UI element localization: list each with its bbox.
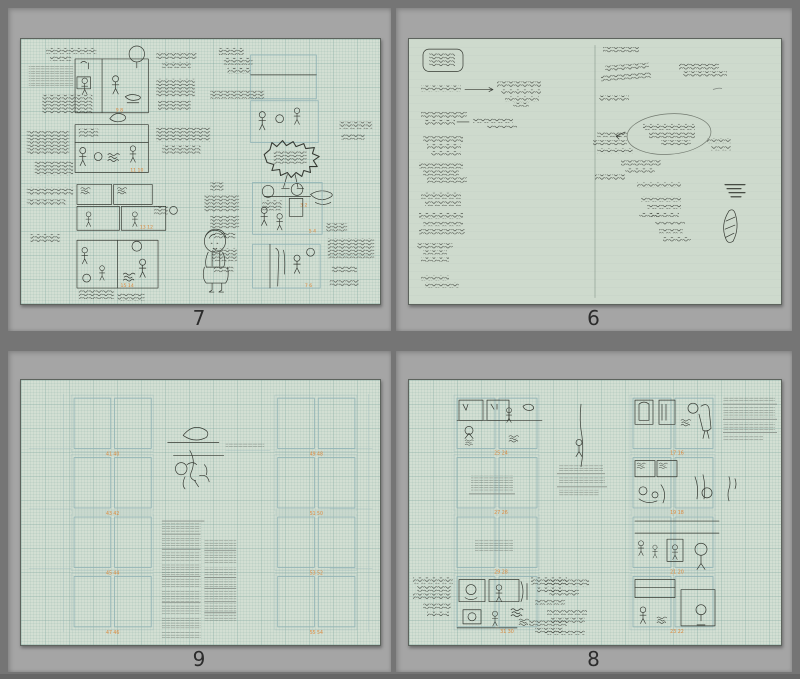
svg-text:9 8: 9 8 xyxy=(116,108,123,114)
page-number-label-6: 6 xyxy=(396,307,792,331)
svg-text:3 2: 3 2 xyxy=(300,202,307,208)
svg-text:45 44: 45 44 xyxy=(106,570,119,576)
svg-text:55 54: 55 54 xyxy=(310,630,323,636)
page-cell-8: 25 24 27 26 29 28 xyxy=(396,351,792,672)
page-number-label-7: 7 xyxy=(8,307,391,331)
page-thumbnail-9[interactable]: 41 40 43 42 45 44 47 46 49 48 51 50 53 5… xyxy=(20,379,381,646)
page-9-paper: 41 40 43 42 45 44 47 46 49 48 51 50 53 5… xyxy=(20,379,381,646)
svg-text:19 18: 19 18 xyxy=(670,510,684,516)
svg-text:41 40: 41 40 xyxy=(106,451,119,457)
page-6-notes-art xyxy=(409,39,781,304)
page-7-paper: 9 8 11 10 xyxy=(20,38,381,305)
page-8-sketch-art: 25 24 27 26 29 28 xyxy=(409,380,781,645)
page-thumbnail-7[interactable]: 9 8 11 10 xyxy=(20,38,381,305)
svg-text:23 22: 23 22 xyxy=(670,629,684,635)
storyboard-grid-view: 9 8 11 10 xyxy=(0,0,800,679)
svg-text:17 16: 17 16 xyxy=(670,451,684,457)
page-8-paper: 25 24 27 26 29 28 xyxy=(408,379,782,646)
svg-text:47 46: 47 46 xyxy=(106,630,119,636)
page-thumbnail-6[interactable] xyxy=(408,38,782,305)
svg-text:31 30: 31 30 xyxy=(500,629,514,635)
page-number-label-9: 9 xyxy=(8,648,391,672)
svg-text:43 42: 43 42 xyxy=(106,511,119,517)
svg-text:7 6: 7 6 xyxy=(305,283,312,289)
page-number-label-8: 8 xyxy=(396,648,792,672)
svg-text:13 12: 13 12 xyxy=(140,224,153,230)
page-9-template-art: 41 40 43 42 45 44 47 46 49 48 51 50 53 5… xyxy=(21,380,380,645)
svg-text:21 20: 21 20 xyxy=(670,569,684,575)
svg-text:51 50: 51 50 xyxy=(310,511,323,517)
svg-text:29 28: 29 28 xyxy=(494,569,508,575)
svg-text:15 14: 15 14 xyxy=(121,283,134,289)
page-6-paper xyxy=(408,38,782,305)
svg-text:49 48: 49 48 xyxy=(310,451,323,457)
svg-text:53 52: 53 52 xyxy=(310,570,323,576)
svg-text:5 4: 5 4 xyxy=(309,228,316,234)
svg-text:25 24: 25 24 xyxy=(494,451,508,457)
page-cell-6: 6 xyxy=(396,8,792,331)
page-cell-7: 9 8 11 10 xyxy=(8,8,391,331)
page-thumbnail-8[interactable]: 25 24 27 26 29 28 xyxy=(408,379,782,646)
page-7-sketch-art: 9 8 11 10 xyxy=(21,39,380,304)
page-cell-9: 41 40 43 42 45 44 47 46 49 48 51 50 53 5… xyxy=(8,351,391,672)
svg-text:27 26: 27 26 xyxy=(494,510,508,516)
svg-text:11 10: 11 10 xyxy=(130,167,143,173)
